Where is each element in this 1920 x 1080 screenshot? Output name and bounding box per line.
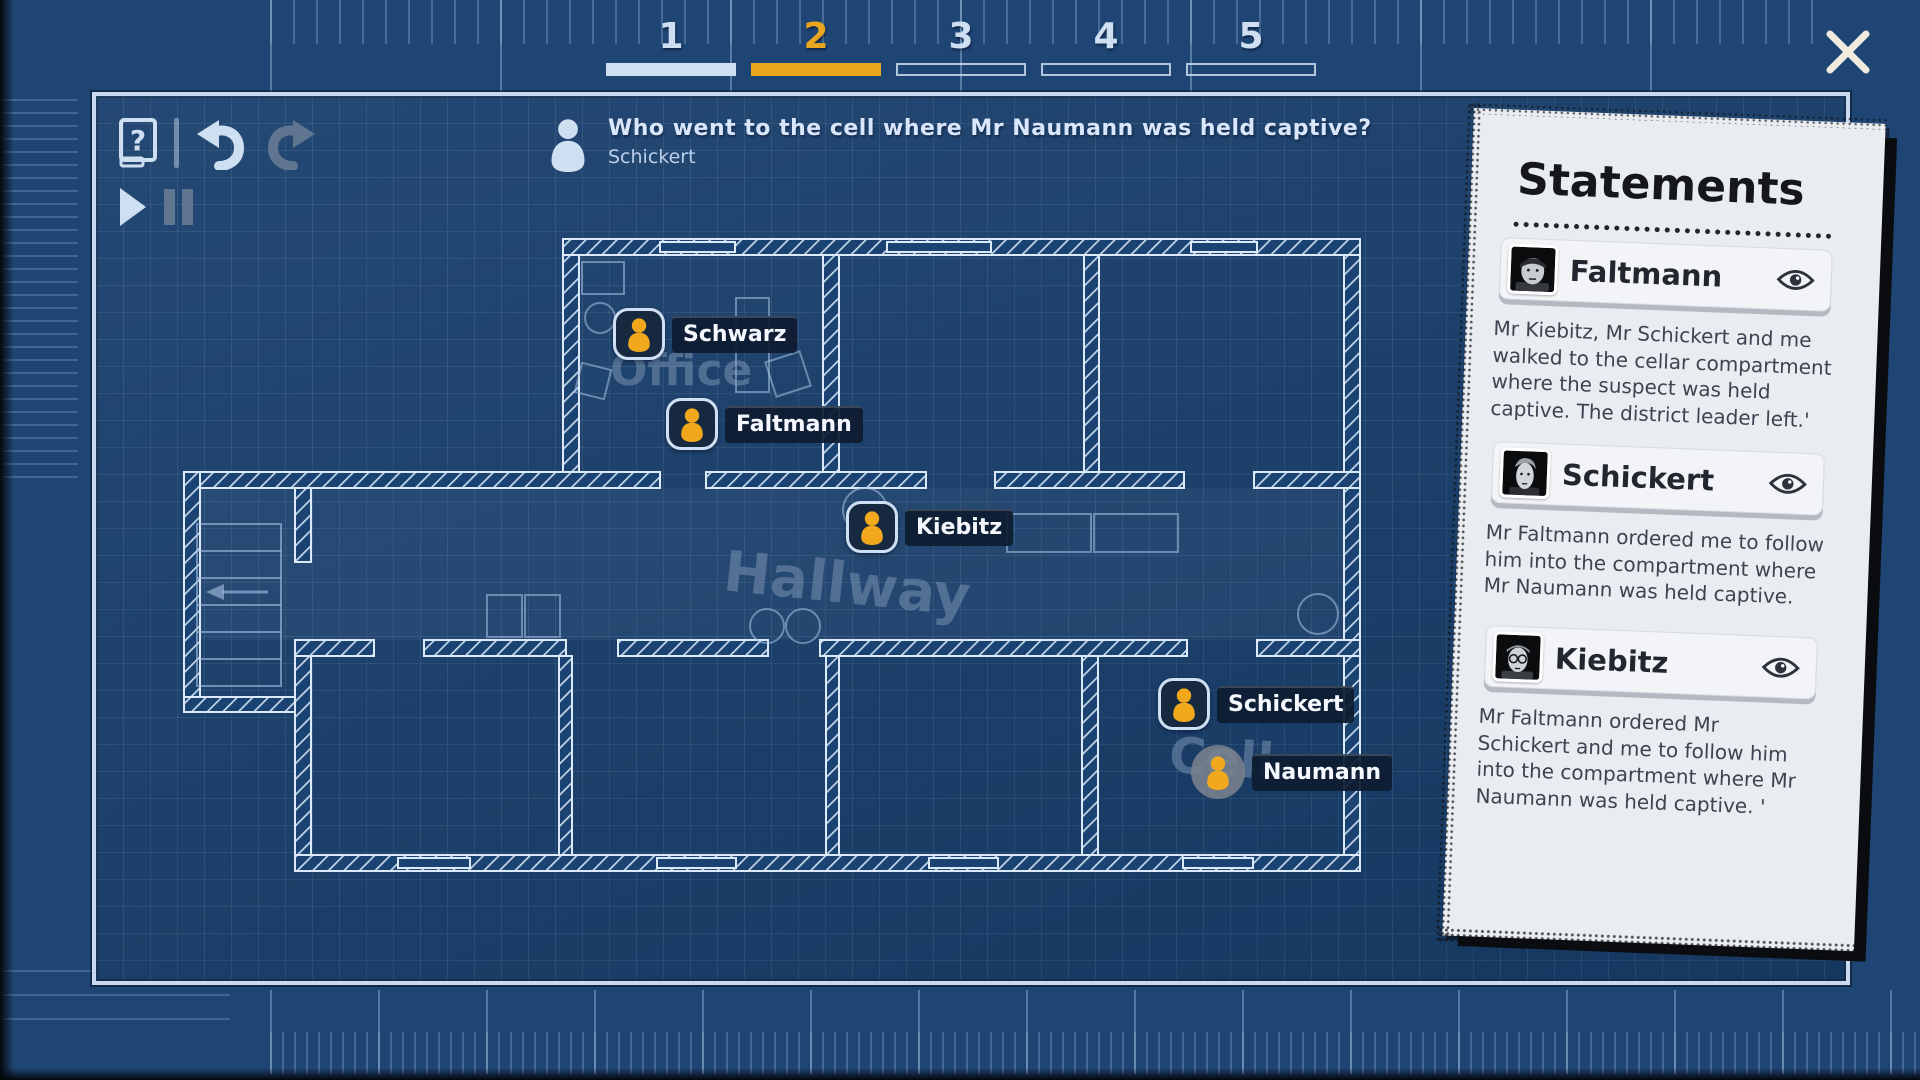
toolbar-divider — [174, 118, 179, 168]
person-icon — [1158, 678, 1210, 730]
screen-edge-bottom — [0, 1068, 1920, 1080]
tab-1[interactable]: 1 — [606, 14, 736, 76]
game-screen: { "header": { "tabs": [ {"label": "1", "… — [0, 0, 1920, 1080]
tab-3-number: 3 — [948, 14, 973, 61]
ruler-ticks-bottom-major — [270, 990, 1920, 1074]
tab-3[interactable]: 3 — [896, 14, 1026, 76]
play-button[interactable] — [120, 188, 146, 226]
eye-icon[interactable] — [1768, 470, 1807, 496]
statement-card-schickert[interactable]: Schickert — [1491, 441, 1825, 516]
screen-edge-left — [0, 0, 14, 1080]
map-marker-faltmann[interactable]: Faltmann — [666, 398, 863, 450]
map-marker-schickert[interactable]: Schickert — [1158, 678, 1354, 730]
statement-name: Faltmann — [1569, 254, 1777, 296]
question-answer-slot[interactable]: Schickert — [608, 146, 1372, 168]
portrait-kiebitz — [1492, 631, 1544, 683]
tab-1-number: 1 — [658, 14, 683, 61]
svg-text:?: ? — [130, 124, 146, 157]
marker-label: Faltmann — [725, 406, 863, 443]
redo-button[interactable] — [263, 116, 319, 170]
toolbar: ? — [116, 116, 319, 170]
tab-1-bar — [606, 63, 736, 76]
statement-card-kiebitz[interactable]: Kiebitz — [1484, 625, 1818, 700]
marker-label: Schickert — [1217, 686, 1354, 723]
tab-3-bar — [896, 63, 1026, 76]
tab-2-number: 2 — [803, 14, 828, 61]
person-icon — [666, 398, 718, 450]
tab-4-number: 4 — [1093, 14, 1118, 61]
tab-2-bar — [751, 63, 881, 76]
pause-icon-bar — [182, 189, 193, 225]
book-question-icon: ? — [116, 117, 160, 169]
statements-title: Statements — [1516, 154, 1805, 216]
progress-tabs: 1 2 3 4 5 — [606, 14, 1316, 76]
eye-icon[interactable] — [1761, 654, 1800, 680]
statement-text-faltmann: Mr Kiebitz, Mr Schickert and me walked t… — [1490, 315, 1834, 434]
statement-card-faltmann[interactable]: Faltmann — [1499, 237, 1833, 312]
marker-label: Schwarz — [672, 316, 797, 353]
statement-text-schickert: Mr Faltmann ordered me to follow him int… — [1483, 519, 1826, 612]
person-icon — [548, 116, 588, 172]
pause-icon — [164, 189, 175, 225]
undo-arrow-icon — [193, 116, 249, 170]
help-button[interactable]: ? — [116, 117, 160, 169]
question-texts: Who went to the cell where Mr Naumann wa… — [608, 116, 1372, 172]
tab-4[interactable]: 4 — [1041, 14, 1171, 76]
close-x-icon — [1822, 26, 1874, 78]
tab-5[interactable]: 5 — [1186, 14, 1316, 76]
statement-text-kiebitz: Mr Faltmann ordered Mr Schickert and me … — [1475, 703, 1815, 822]
redo-arrow-icon — [263, 116, 319, 170]
statement-name: Schickert — [1561, 458, 1769, 500]
undo-button[interactable] — [193, 116, 249, 170]
tab-5-number: 5 — [1238, 14, 1263, 61]
play-icon — [120, 188, 146, 226]
map-marker-schwarz[interactable]: Schwarz — [613, 308, 797, 360]
tab-2[interactable]: 2 — [751, 14, 881, 76]
statements-title-rule — [1513, 222, 1831, 239]
tab-4-bar — [1041, 63, 1171, 76]
question-text: Who went to the cell where Mr Naumann wa… — [608, 116, 1372, 141]
map-marker-naumann[interactable]: Naumann — [1191, 745, 1392, 799]
map-marker-kiebitz[interactable]: Kiebitz — [846, 501, 1013, 553]
portrait-faltmann — [1507, 243, 1559, 295]
statements-panel: Statements Faltmann Mr Kiebitz, Mr Schic… — [1442, 108, 1885, 951]
playback-controls — [120, 188, 193, 226]
tab-5-bar — [1186, 63, 1316, 76]
person-icon — [613, 308, 665, 360]
marker-label: Kiebitz — [905, 509, 1013, 546]
question-bar: Who went to the cell where Mr Naumann wa… — [548, 116, 1372, 172]
marker-label: Naumann — [1252, 754, 1392, 791]
close-button[interactable] — [1820, 24, 1876, 80]
eye-icon[interactable] — [1776, 266, 1815, 292]
pause-button[interactable] — [164, 189, 193, 225]
statement-name: Kiebitz — [1554, 642, 1762, 684]
person-icon — [846, 501, 898, 553]
person-icon — [1191, 745, 1245, 799]
portrait-schickert — [1499, 447, 1551, 499]
